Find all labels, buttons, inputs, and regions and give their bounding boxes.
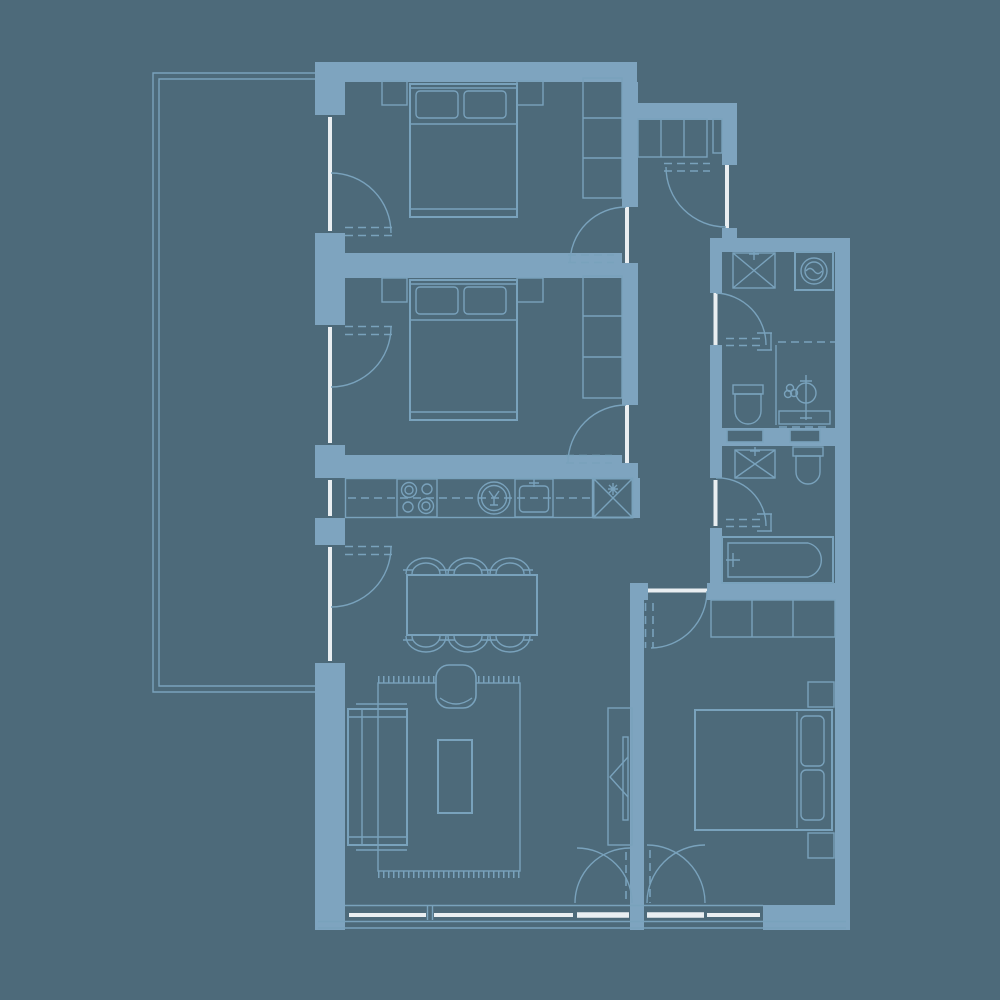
- chair-icon: [445, 636, 491, 652]
- floor-plan: [0, 0, 1000, 1000]
- closet-shelves: [638, 119, 707, 157]
- duct: [790, 430, 820, 442]
- vanity-sink-icon: [733, 250, 775, 288]
- nightstand-icon: [382, 81, 407, 105]
- door-arc: [568, 405, 626, 463]
- terrace-outline-inner: [159, 79, 320, 686]
- wall-bed1-bed2: [345, 253, 638, 278]
- armchair-icon: [436, 665, 476, 708]
- duct: [713, 119, 722, 153]
- door-arc: [647, 845, 705, 903]
- tv-unit-icon: [608, 708, 632, 845]
- toilet-icon: [733, 385, 763, 424]
- chair-icon: [487, 636, 533, 652]
- nightstand-icon: [517, 81, 543, 105]
- wardrobe-icon: [583, 276, 622, 398]
- door-arc: [666, 167, 726, 227]
- nightstand-icon: [808, 682, 834, 707]
- pillow-icon: [464, 91, 506, 118]
- bedroom-3: [695, 600, 835, 858]
- bedroom-2: [382, 276, 622, 420]
- pillow-icon: [801, 770, 824, 820]
- bathtub-icon: [722, 537, 833, 583]
- pillow-icon: [416, 91, 458, 118]
- chair-icon: [403, 636, 449, 652]
- door-arc: [577, 848, 632, 903]
- nightstand-icon: [517, 278, 543, 302]
- pillow-icon: [416, 287, 458, 314]
- terrace-outline: [153, 73, 320, 692]
- hall: [638, 119, 722, 157]
- terrace: [153, 73, 320, 692]
- nightstand-icon: [382, 278, 407, 302]
- pillow-icon: [464, 287, 506, 314]
- living-dining: [348, 558, 632, 875]
- nightstand-icon: [808, 833, 834, 858]
- wall-bed2-kitchen: [345, 455, 638, 478]
- wardrobe-icon: [583, 78, 622, 198]
- wall-kitchen-stub: [633, 478, 640, 518]
- bathroom-2: [722, 447, 833, 583]
- pillow-icon: [801, 716, 824, 766]
- wall-bottom-right: [763, 905, 850, 930]
- openings: [315, 115, 772, 663]
- tv-icon: [623, 737, 628, 820]
- wall-bath-top: [710, 238, 850, 252]
- door-arc: [575, 848, 630, 903]
- duct: [727, 430, 763, 442]
- washing-machine-icon: [795, 252, 833, 290]
- toilet-icon: [793, 447, 823, 484]
- chair-icon: [445, 558, 491, 574]
- round-basin-icon: [779, 375, 830, 427]
- refrigerator-icon: [594, 479, 633, 518]
- wardrobe-icon: [711, 600, 835, 637]
- wall-top: [315, 62, 637, 82]
- door-arc: [647, 845, 705, 903]
- bedroom-1: [382, 78, 622, 217]
- chair-icon: [403, 558, 449, 574]
- dining-table: [407, 575, 537, 635]
- door-stop: [757, 333, 772, 350]
- vanity-sink-icon: [735, 447, 775, 478]
- door-arc: [716, 293, 766, 345]
- kitchen: [346, 479, 633, 518]
- chair-icon: [487, 558, 533, 574]
- coffee-table: [438, 740, 472, 813]
